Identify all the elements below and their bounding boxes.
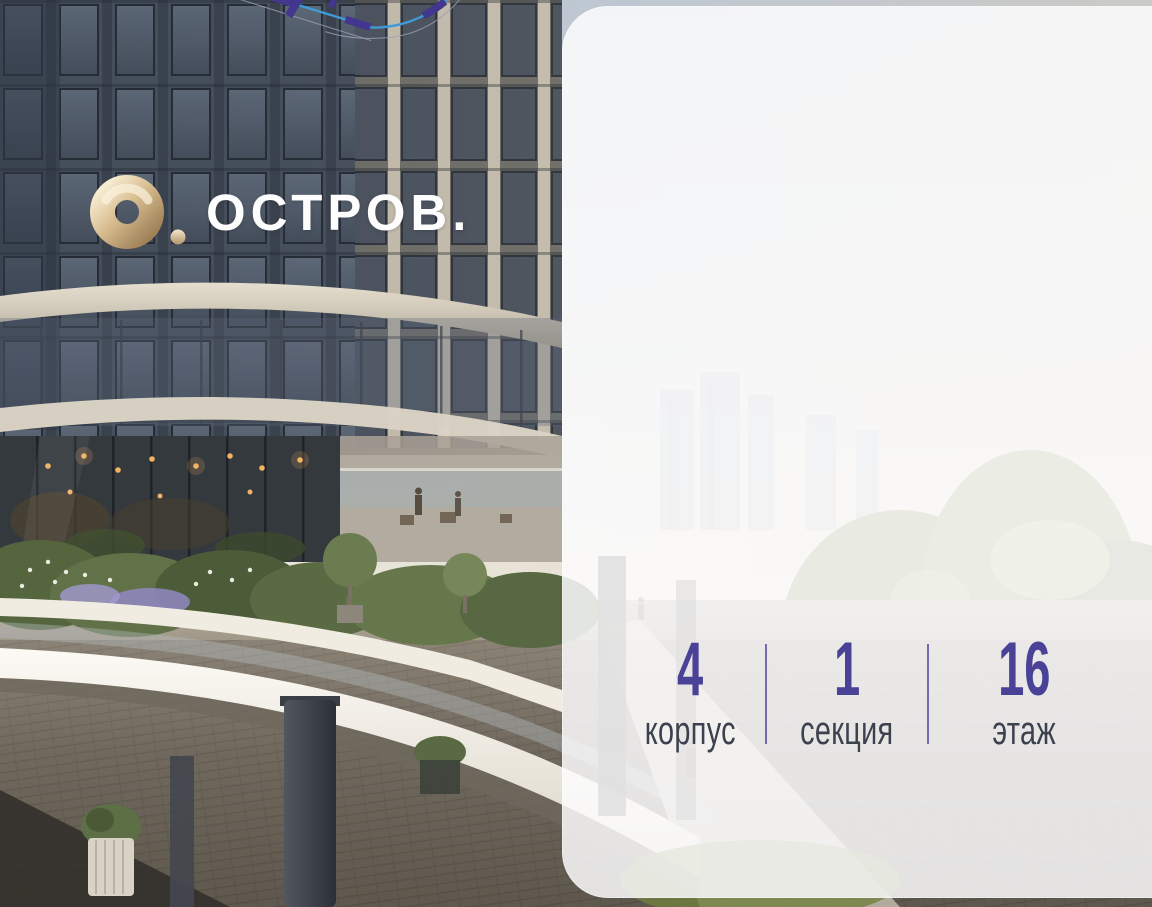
sekciya-value: 1 <box>834 636 860 704</box>
korpus-value: 4 <box>677 636 703 704</box>
brand-logo: ОСТРОВ. <box>70 156 270 266</box>
brand-name: ОСТРОВ. <box>206 187 471 238</box>
stat-block-etazh: 16 этаж <box>929 636 1119 754</box>
terrace <box>340 436 562 562</box>
info-panel <box>562 6 1152 898</box>
stat-divider <box>927 644 929 744</box>
stat-divider <box>765 644 767 744</box>
etazh-value: 16 <box>998 636 1050 704</box>
unit-info-row: 4 корпус 1 секция 16 этаж <box>615 636 1119 754</box>
etazh-label: этаж <box>992 709 1056 754</box>
stat-block-korpus: 4 корпус <box>615 636 765 754</box>
stat-block-sekciya: 1 секция <box>767 636 927 754</box>
page: { "brand": { "name": "ОСТРОВ." }, "unit_… <box>0 0 1152 907</box>
korpus-label: корпус <box>644 709 735 754</box>
sekciya-label: секция <box>800 709 893 754</box>
